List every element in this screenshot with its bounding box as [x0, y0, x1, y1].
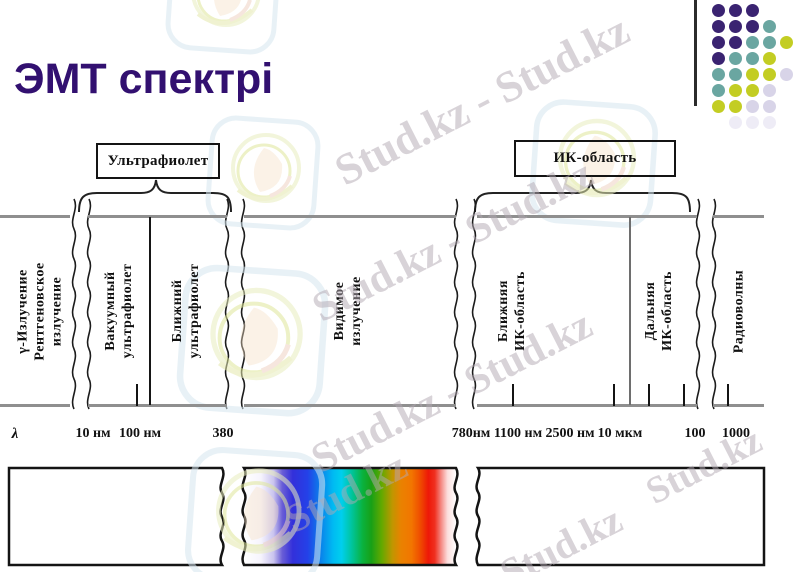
boundary-tick [613, 384, 615, 406]
decor-dot [763, 36, 776, 49]
region-label: ДальняяИК-область [642, 216, 676, 406]
decor-dot [712, 4, 725, 17]
wavy-break-line [226, 199, 229, 409]
decor-dot [729, 116, 742, 129]
decor-dot [763, 84, 776, 97]
spectrum-bar-right-segment [477, 468, 764, 565]
wavy-break-line [697, 199, 700, 409]
studkz-logo-watermark [186, 448, 324, 572]
axis-tick-label: λ [12, 426, 19, 443]
axis-tick-label: 780нм [452, 426, 491, 442]
uv-region-box-label: Ультрафиолет [108, 153, 209, 170]
studkz-text-watermark: Stud.kz - Stud.kz [304, 301, 600, 484]
wavy-break-line [713, 199, 716, 409]
studkz-text-watermark: Stud.kz [639, 418, 769, 513]
decor-dot [763, 68, 776, 81]
wavy-break-line [242, 199, 245, 409]
band-divider [629, 217, 631, 405]
ir-region-box: ИК-область [514, 140, 676, 177]
decor-dot [712, 100, 725, 113]
decor-dot [712, 84, 725, 97]
spectrum-bar-color-segment [243, 468, 458, 565]
studkz-text-watermark: Stud.kz [277, 442, 414, 543]
region-label-line: ультрафиолет [119, 216, 136, 406]
region-label-line: Рентгеновское [32, 216, 49, 406]
wavy-break-line [73, 199, 76, 409]
wavy-break-line [455, 199, 458, 409]
decor-dot [780, 68, 793, 81]
decor-dot [746, 116, 759, 129]
ir-region-box-label: ИК-область [553, 150, 636, 167]
decor-dot [780, 36, 793, 49]
boundary-tick [648, 384, 650, 406]
band-border-segment [0, 215, 70, 218]
region-label-line: ИК-область [659, 216, 676, 406]
region-label-line: Видимое [331, 216, 348, 406]
decor-vertical-line [694, 0, 697, 106]
wavy-break-line [473, 199, 476, 409]
region-label: γ-ИзлучениеРентгеновскоеизлучение [15, 216, 66, 406]
decor-dot [763, 116, 776, 129]
axis-tick-label: 10 нм [75, 426, 110, 442]
region-label-line: излучение [348, 216, 365, 406]
decor-dot [746, 20, 759, 33]
ir-brace [475, 180, 690, 212]
spectrum-bar-left-segment [9, 468, 223, 565]
region-label-line: ИК-область [512, 216, 529, 406]
band-border-segment [244, 404, 456, 407]
region-label-line: ультрафиолет [186, 216, 203, 406]
axis-tick-label: 1100 нм [494, 426, 542, 442]
band-border-segment [244, 215, 456, 218]
axis-tick-label: 100 [685, 426, 706, 442]
band-border-segment [88, 404, 227, 407]
region-label: БлижняяИК-область [495, 216, 529, 406]
region-label-line: Дальняя [642, 216, 659, 406]
boundary-tick [683, 384, 685, 406]
region-label-line: Ближняя [495, 216, 512, 406]
axis-tick-label: 1000 [722, 426, 750, 442]
band-divider [149, 217, 151, 405]
axis-tick-label: 10 мкм [598, 426, 643, 442]
studkz-text-watermark: Stud.kz - Stud.kz [305, 150, 601, 333]
decor-dot [729, 20, 742, 33]
region-label-line: Радиоволны [731, 216, 748, 406]
studkz-logo-watermark [206, 116, 319, 229]
axis-tick-label: 380 [213, 426, 234, 442]
region-label: Радиоволны [731, 216, 748, 406]
decor-dot [763, 52, 776, 65]
studkz-logo-watermark [178, 266, 327, 415]
decor-dot [746, 36, 759, 49]
decor-dot [763, 20, 776, 33]
axis-tick-label: 100 нм [119, 426, 161, 442]
decor-dot [712, 68, 725, 81]
region-label: Ближнийультрафиолет [169, 216, 203, 406]
band-border-segment [713, 215, 764, 218]
region-label-line: излучение [49, 216, 66, 406]
decor-dot [729, 4, 742, 17]
slide: ЭМТ спектрі Ультрафиолет ИК-область γ-Из… [0, 0, 800, 572]
decor-dot [746, 100, 759, 113]
decor-dot [712, 52, 725, 65]
decor-dot [746, 52, 759, 65]
decor-dot [746, 4, 759, 17]
axis-tick-label: 2500 нм [545, 426, 594, 442]
decor-dot [729, 36, 742, 49]
band-border-segment [477, 215, 697, 218]
boundary-tick [512, 384, 514, 406]
dot-grid [712, 4, 800, 132]
region-label: Вакуумныйультрафиолет [102, 216, 136, 406]
decor-dot [729, 84, 742, 97]
band-border-segment [0, 404, 70, 407]
decor-dot [746, 68, 759, 81]
uv-brace [79, 180, 231, 212]
region-label-line: γ-Излучение [15, 216, 32, 406]
region-label-line: Вакуумный [102, 216, 119, 406]
decor-dot [712, 36, 725, 49]
decor-dot [746, 84, 759, 97]
region-label-line: Ближний [169, 216, 186, 406]
boundary-tick [136, 384, 138, 406]
band-border-segment [713, 404, 764, 407]
region-label: Видимоеизлучение [331, 216, 365, 406]
slide-title: ЭМТ спектрі [14, 55, 273, 104]
decor-dot [729, 100, 742, 113]
decor-dot [763, 100, 776, 113]
studkz-logo-watermark [166, 0, 279, 54]
decor-dot [729, 52, 742, 65]
band-border-segment [88, 215, 227, 218]
studkz-text-watermark: Stud.kz [492, 496, 629, 572]
boundary-tick [727, 384, 729, 406]
band-border-segment [477, 404, 697, 407]
decor-dot [712, 20, 725, 33]
uv-region-box: Ультрафиолет [96, 143, 220, 179]
wavy-break-line [88, 199, 91, 409]
decor-dot [729, 68, 742, 81]
